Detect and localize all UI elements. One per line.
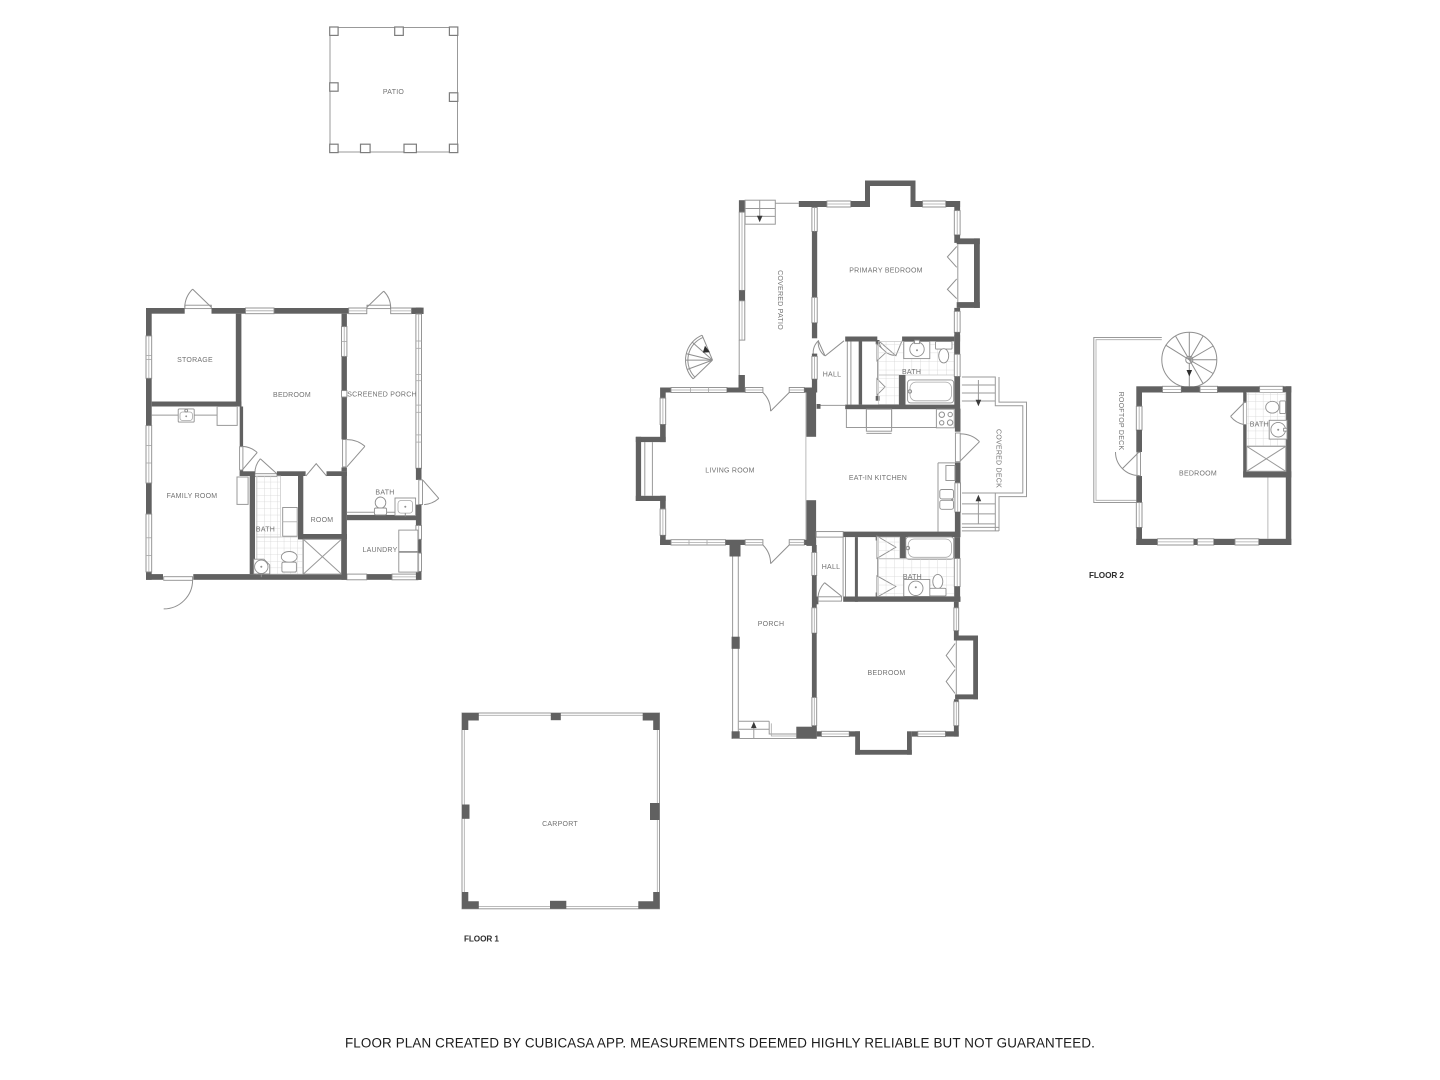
svg-text:PORCH: PORCH bbox=[758, 621, 785, 628]
svg-text:ROOFTOP DECK: ROOFTOP DECK bbox=[1117, 392, 1124, 451]
svg-text:BEDROOM: BEDROOM bbox=[273, 392, 311, 399]
svg-text:LIVING ROOM: LIVING ROOM bbox=[705, 468, 754, 475]
svg-text:FLOOR PLAN CREATED BY CUBICASA: FLOOR PLAN CREATED BY CUBICASA APP. MEAS… bbox=[345, 1036, 1095, 1051]
svg-text:FLOOR 1: FLOOR 1 bbox=[464, 935, 499, 944]
svg-text:COVERED DECK: COVERED DECK bbox=[994, 429, 1001, 488]
svg-text:PATIO: PATIO bbox=[383, 89, 405, 96]
svg-text:PRIMARY BEDROOM: PRIMARY BEDROOM bbox=[849, 268, 923, 275]
svg-text:BATH: BATH bbox=[375, 490, 394, 497]
svg-text:STORAGE: STORAGE bbox=[177, 357, 213, 364]
svg-text:BATH: BATH bbox=[902, 369, 921, 376]
svg-text:EAT-IN KITCHEN: EAT-IN KITCHEN bbox=[849, 475, 907, 482]
svg-text:BATH: BATH bbox=[256, 527, 275, 534]
svg-text:CARPORT: CARPORT bbox=[542, 821, 578, 828]
svg-text:SCREENED PORCH: SCREENED PORCH bbox=[347, 392, 417, 399]
svg-text:ROOM: ROOM bbox=[311, 517, 334, 524]
svg-text:HALL: HALL bbox=[823, 371, 842, 378]
svg-text:BATH: BATH bbox=[903, 574, 922, 581]
svg-text:BEDROOM: BEDROOM bbox=[1179, 471, 1217, 478]
svg-text:FAMILY ROOM: FAMILY ROOM bbox=[167, 493, 218, 500]
svg-text:FLOOR 2: FLOOR 2 bbox=[1089, 571, 1124, 580]
svg-text:BATH: BATH bbox=[1250, 422, 1269, 429]
svg-text:BEDROOM: BEDROOM bbox=[868, 670, 906, 677]
svg-text:COVERED PATIO: COVERED PATIO bbox=[776, 270, 783, 330]
svg-text:HALL: HALL bbox=[822, 564, 841, 571]
svg-text:LAUNDRY: LAUNDRY bbox=[362, 547, 397, 554]
